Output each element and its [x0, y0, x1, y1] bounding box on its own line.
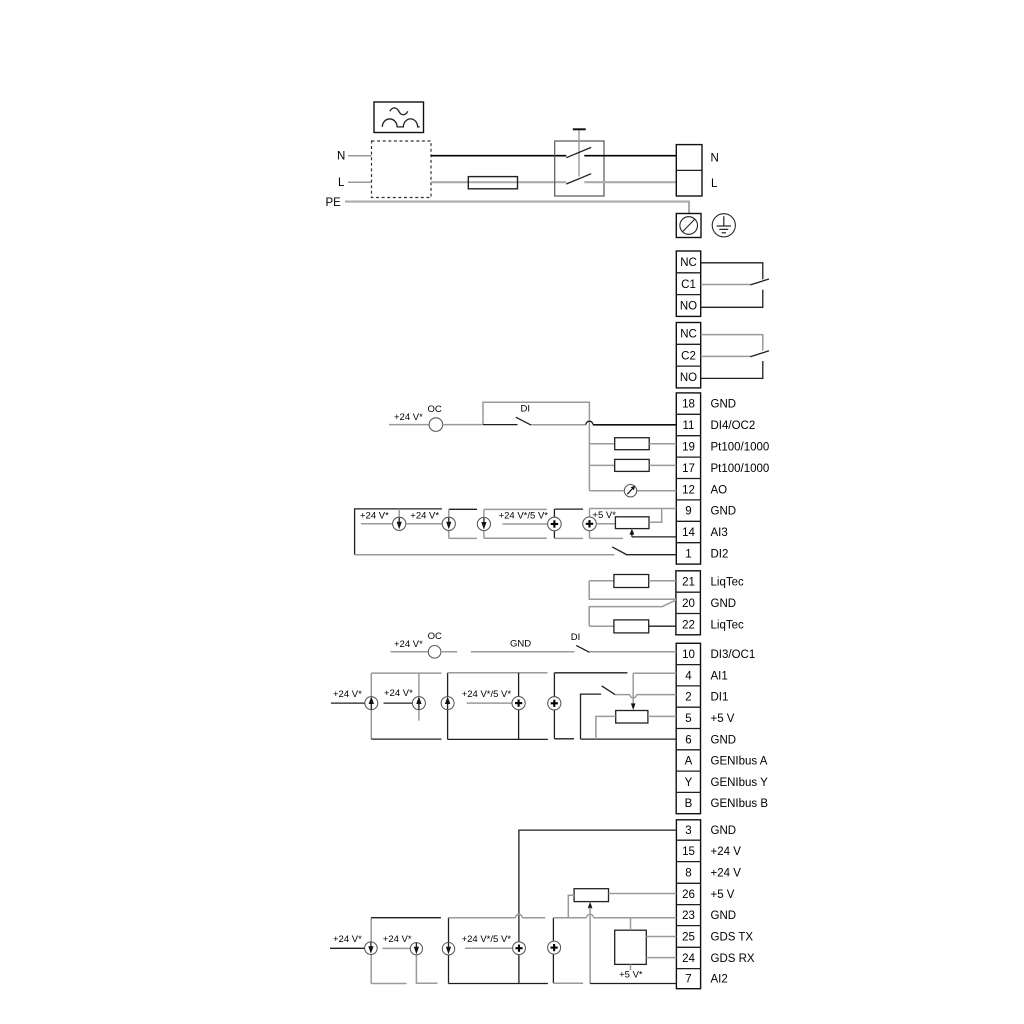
svg-text:N: N: [711, 153, 719, 165]
svg-text:DI: DI: [571, 632, 581, 643]
svg-text:18: 18: [682, 399, 695, 411]
svg-text:NO: NO: [680, 301, 697, 313]
svg-text:DI4/OC2: DI4/OC2: [711, 420, 756, 432]
svg-text:+24 V*/5 V*: +24 V*/5 V*: [462, 689, 512, 700]
svg-text:+24 V*: +24 V*: [333, 689, 362, 700]
svg-text:+24 V*: +24 V*: [384, 688, 413, 699]
svg-text:21: 21: [682, 577, 695, 589]
svg-text:LiqTec: LiqTec: [711, 619, 744, 631]
svg-text:GND: GND: [711, 399, 737, 411]
svg-text:AI1: AI1: [711, 670, 728, 682]
svg-text:AI2: AI2: [711, 974, 728, 986]
svg-text:LiqTec: LiqTec: [711, 577, 744, 589]
svg-text:5: 5: [685, 713, 691, 725]
svg-text:+24 V: +24 V: [711, 868, 742, 880]
svg-text:PE: PE: [326, 197, 342, 209]
svg-text:+5 V: +5 V: [711, 889, 735, 901]
svg-text:24: 24: [682, 953, 695, 965]
svg-text:+24 V*: +24 V*: [394, 412, 423, 423]
svg-text:Y: Y: [685, 777, 693, 789]
svg-text:OC: OC: [428, 404, 442, 415]
svg-text:19: 19: [682, 442, 695, 454]
svg-text:9: 9: [685, 506, 691, 518]
svg-text:DI2: DI2: [711, 549, 729, 561]
svg-text:B: B: [685, 798, 693, 810]
svg-text:6: 6: [685, 734, 691, 746]
svg-text:2: 2: [685, 692, 691, 704]
svg-text:GND: GND: [711, 734, 737, 746]
svg-text:+24 V*/5 V*: +24 V*/5 V*: [499, 511, 549, 522]
svg-text:AO: AO: [711, 484, 728, 496]
svg-text:NO: NO: [680, 372, 697, 384]
svg-text:3: 3: [685, 825, 691, 837]
svg-text:Pt100/1000: Pt100/1000: [711, 442, 770, 454]
svg-text:C1: C1: [681, 279, 696, 291]
svg-text:GDS TX: GDS TX: [711, 932, 754, 944]
svg-text:+24 V*: +24 V*: [394, 639, 423, 650]
svg-text:+5 V*: +5 V*: [592, 510, 616, 521]
svg-text:GENIbus A: GENIbus A: [711, 756, 768, 768]
svg-text:+24 V*: +24 V*: [410, 511, 439, 522]
svg-text:7: 7: [685, 974, 691, 986]
svg-text:GND: GND: [510, 638, 531, 649]
svg-text:GND: GND: [711, 825, 737, 837]
svg-text:AI3: AI3: [711, 527, 728, 539]
svg-text:GND: GND: [711, 506, 737, 518]
svg-text:DI: DI: [521, 404, 531, 415]
svg-text:+24 V*: +24 V*: [360, 511, 389, 522]
svg-text:NC: NC: [680, 257, 697, 269]
svg-text:L: L: [338, 177, 345, 189]
svg-text:A: A: [685, 756, 693, 768]
svg-text:11: 11: [683, 420, 695, 432]
svg-text:10: 10: [682, 649, 695, 661]
svg-text:+5 V*: +5 V*: [619, 969, 643, 980]
svg-text:GDS RX: GDS RX: [711, 953, 755, 965]
svg-text:DI3/OC1: DI3/OC1: [711, 649, 756, 661]
svg-text:15: 15: [682, 846, 695, 858]
svg-text:N: N: [337, 151, 345, 163]
svg-text:4: 4: [685, 670, 692, 682]
svg-text:GND: GND: [711, 910, 737, 922]
svg-text:+24 V*/5 V*: +24 V*/5 V*: [462, 934, 512, 945]
svg-text:1: 1: [685, 549, 691, 561]
svg-text:OC: OC: [428, 631, 442, 642]
svg-text:22: 22: [682, 619, 695, 631]
svg-text:17: 17: [682, 463, 695, 475]
svg-text:+24 V*: +24 V*: [333, 934, 362, 945]
svg-text:DI1: DI1: [711, 692, 729, 704]
svg-text:20: 20: [682, 598, 695, 610]
svg-text:26: 26: [682, 889, 695, 901]
svg-text:8: 8: [685, 868, 691, 880]
svg-text:GENIbus Y: GENIbus Y: [711, 777, 769, 789]
svg-text:12: 12: [682, 484, 695, 496]
svg-text:C2: C2: [681, 350, 696, 362]
svg-text:+5 V: +5 V: [711, 713, 735, 725]
svg-text:+24 V: +24 V: [711, 846, 742, 858]
svg-text:23: 23: [682, 910, 695, 922]
svg-text:25: 25: [682, 932, 695, 944]
svg-text:GENIbus B: GENIbus B: [711, 798, 769, 810]
svg-text:14: 14: [682, 527, 695, 539]
svg-text:+24 V*: +24 V*: [383, 934, 412, 945]
svg-text:Pt100/1000: Pt100/1000: [711, 463, 770, 475]
svg-text:GND: GND: [711, 598, 737, 610]
svg-text:NC: NC: [680, 329, 697, 341]
svg-text:L: L: [711, 178, 718, 190]
